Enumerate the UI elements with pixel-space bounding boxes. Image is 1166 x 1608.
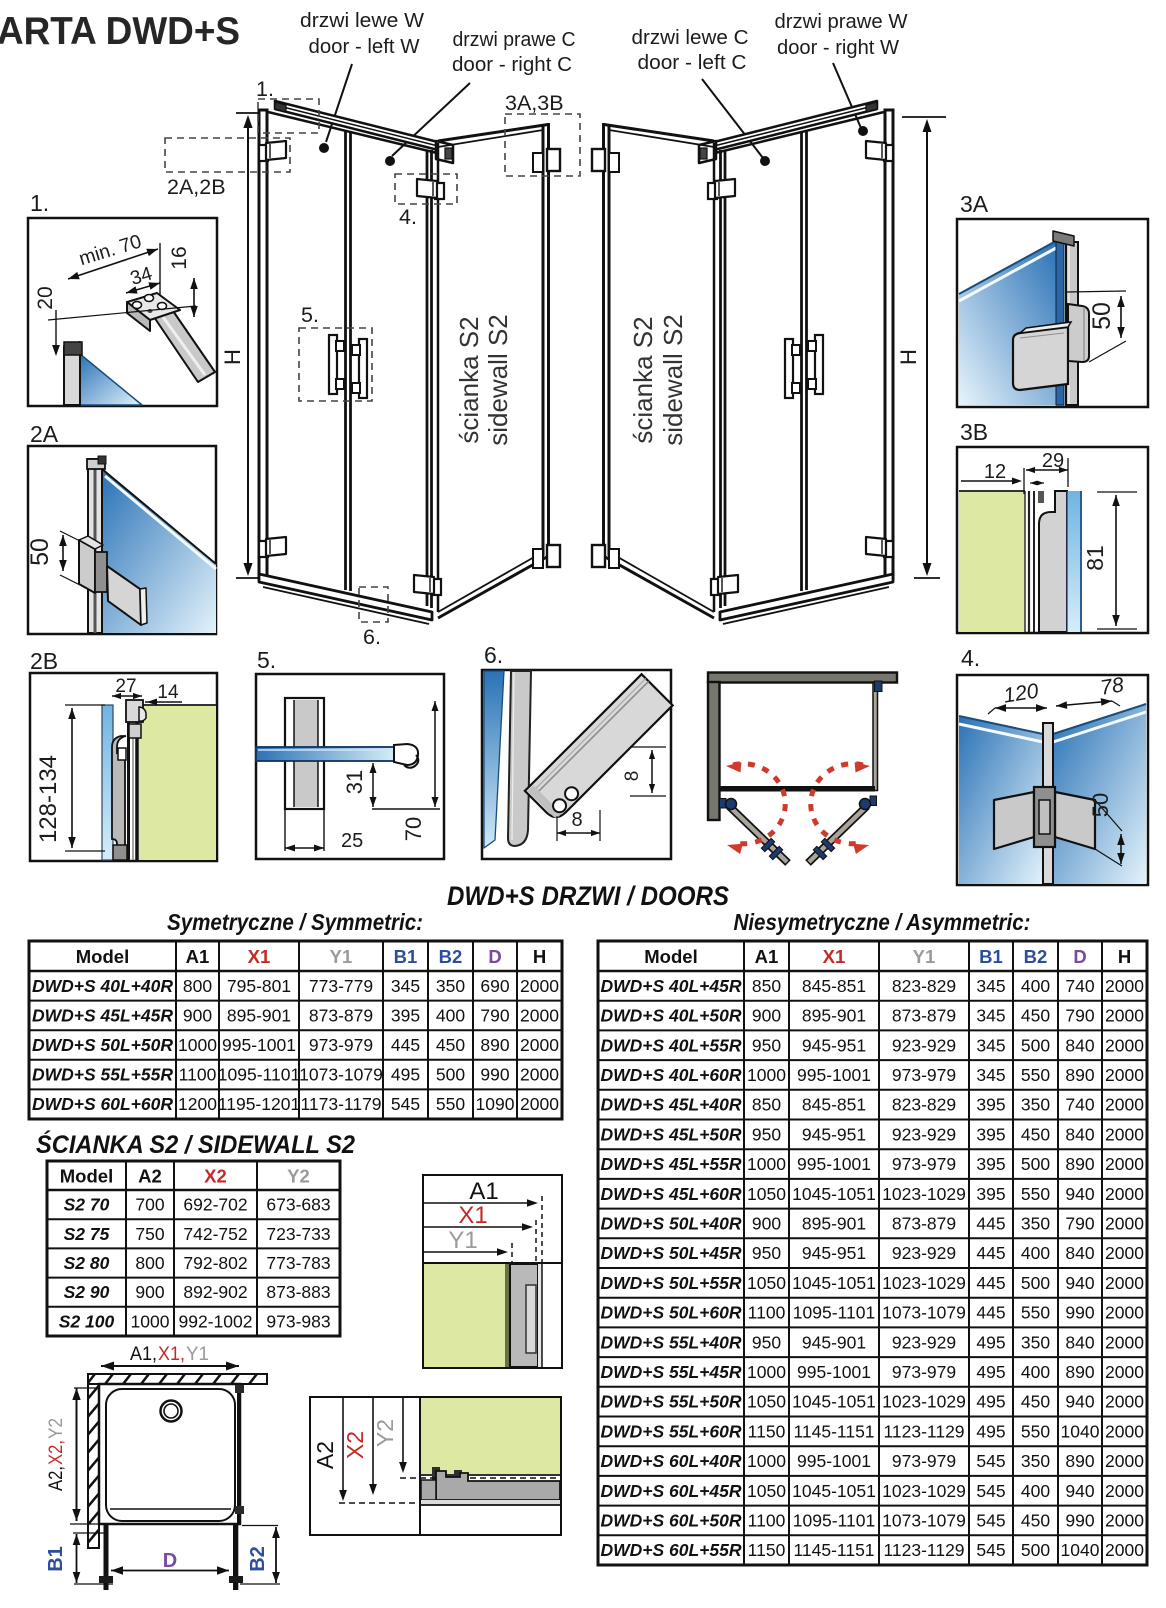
svg-text:S2 90: S2 90 [64, 1282, 110, 1302]
svg-text:X1: X1 [458, 1202, 487, 1229]
svg-text:550: 550 [1021, 1421, 1050, 1441]
svg-text:973-983: 973-983 [266, 1311, 330, 1331]
svg-text:500: 500 [1021, 1035, 1050, 1055]
svg-text:78: 78 [1099, 673, 1126, 699]
svg-text:X2: X2 [204, 1166, 227, 1187]
svg-text:S2 80: S2 80 [64, 1253, 110, 1273]
svg-text:1050: 1050 [747, 1273, 786, 1293]
svg-text:2A,2B: 2A,2B [167, 175, 226, 199]
svg-text:995-1001: 995-1001 [797, 1154, 871, 1174]
svg-text:1095-1101: 1095-1101 [218, 1065, 300, 1085]
svg-text:DWD+S 40L+60R: DWD+S 40L+60R [600, 1065, 741, 1085]
svg-text:840: 840 [1065, 1035, 1094, 1055]
svg-text:400: 400 [1021, 1243, 1050, 1263]
svg-text:Model: Model [76, 946, 129, 967]
svg-text:850: 850 [752, 976, 781, 996]
svg-text:345: 345 [391, 976, 420, 996]
svg-text:S2 70: S2 70 [64, 1195, 110, 1215]
svg-text:1000: 1000 [747, 1451, 786, 1471]
svg-text:790: 790 [480, 1005, 509, 1025]
svg-text:door - right C: door - right C [452, 54, 572, 76]
svg-text:1023-1029: 1023-1029 [882, 1273, 966, 1293]
svg-text:890: 890 [1065, 1154, 1094, 1174]
svg-text:545: 545 [976, 1451, 1005, 1471]
svg-text:2000: 2000 [1105, 1154, 1144, 1174]
svg-text:1023-1029: 1023-1029 [882, 1481, 966, 1501]
svg-text:1050: 1050 [747, 1184, 786, 1204]
svg-text:1045-1051: 1045-1051 [792, 1392, 876, 1412]
svg-text:1150: 1150 [748, 1540, 786, 1560]
svg-text:400: 400 [436, 1005, 465, 1025]
svg-text:773-783: 773-783 [266, 1253, 330, 1273]
svg-text:1045-1051: 1045-1051 [792, 1184, 876, 1204]
svg-text:sidewall S2: sidewall S2 [483, 314, 513, 446]
svg-text:940: 940 [1065, 1184, 1094, 1204]
svg-text:995-1001: 995-1001 [797, 1451, 871, 1471]
svg-text:25: 25 [341, 830, 363, 852]
svg-text:890: 890 [1065, 1451, 1094, 1471]
svg-text:2000: 2000 [520, 1005, 559, 1025]
svg-text:DWD+S 50L+45R: DWD+S 50L+45R [600, 1243, 741, 1263]
svg-text:2000: 2000 [1105, 1243, 1144, 1263]
svg-text:6.: 6. [484, 642, 503, 668]
svg-text:2000: 2000 [520, 976, 559, 996]
svg-text:445: 445 [976, 1303, 1005, 1323]
svg-text:500: 500 [1021, 1154, 1050, 1174]
svg-text:DWD+S 50L+55R: DWD+S 50L+55R [600, 1273, 741, 1293]
svg-text:8: 8 [571, 809, 582, 831]
svg-text:945-951: 945-951 [802, 1035, 866, 1055]
svg-text:DWD+S 50L+40R: DWD+S 50L+40R [600, 1213, 741, 1233]
svg-text:2000: 2000 [520, 1094, 559, 1114]
svg-text:2000: 2000 [1105, 1184, 1144, 1204]
svg-text:1173-1179: 1173-1179 [300, 1094, 381, 1114]
svg-text:ARTA DWD+S: ARTA DWD+S [0, 10, 240, 53]
svg-text:1000: 1000 [131, 1311, 170, 1331]
svg-text:950: 950 [752, 1124, 781, 1144]
svg-text:950: 950 [752, 1035, 781, 1055]
svg-text:Model: Model [644, 946, 697, 967]
svg-text:2000: 2000 [1105, 1421, 1144, 1441]
svg-text:550: 550 [1021, 1184, 1050, 1204]
svg-text:B1: B1 [394, 946, 418, 967]
svg-text:X1,: X1, [158, 1344, 185, 1365]
svg-text:A2: A2 [138, 1166, 162, 1187]
svg-text:Y2: Y2 [46, 1418, 67, 1439]
svg-text:1195-1201: 1195-1201 [218, 1094, 300, 1114]
svg-text:1100: 1100 [748, 1303, 786, 1323]
svg-text:1145-1151: 1145-1151 [793, 1421, 874, 1441]
svg-text:H: H [220, 349, 245, 365]
svg-text:Y2: Y2 [372, 1419, 398, 1447]
svg-text:1050: 1050 [747, 1481, 786, 1501]
svg-text:750: 750 [135, 1224, 164, 1244]
svg-text:DWD+S 45L+55R: DWD+S 45L+55R [600, 1154, 741, 1174]
svg-text:445: 445 [976, 1273, 1005, 1293]
svg-text:2000: 2000 [1105, 1006, 1144, 1026]
svg-text:345: 345 [976, 976, 1005, 996]
svg-text:923-929: 923-929 [892, 1035, 956, 1055]
svg-text:973-979: 973-979 [892, 1065, 956, 1085]
svg-text:X1: X1 [823, 946, 846, 967]
svg-text:31: 31 [342, 770, 367, 794]
svg-text:550: 550 [436, 1094, 465, 1114]
svg-text:395: 395 [976, 1184, 1005, 1204]
svg-text:940: 940 [1065, 1273, 1094, 1293]
svg-text:50: 50 [1088, 302, 1116, 330]
svg-text:992-1002: 992-1002 [179, 1311, 253, 1331]
svg-text:545: 545 [976, 1510, 1005, 1530]
svg-text:DWD+S 50L+50R: DWD+S 50L+50R [32, 1035, 173, 1055]
svg-text:ŚCIANKA S2 / SIDEWALL S2: ŚCIANKA S2 / SIDEWALL S2 [36, 1130, 355, 1159]
svg-text:890: 890 [480, 1035, 509, 1055]
svg-text:Symetryczne / Symmetric:: Symetryczne / Symmetric: [167, 909, 423, 935]
svg-text:545: 545 [976, 1481, 1005, 1501]
svg-text:973-979: 973-979 [892, 1451, 956, 1471]
svg-text:345: 345 [976, 1065, 1005, 1085]
svg-text:790: 790 [1065, 1006, 1094, 1026]
svg-text:673-683: 673-683 [266, 1195, 330, 1215]
svg-text:DWD+S 55L+50R: DWD+S 55L+50R [600, 1392, 741, 1412]
svg-text:DWD+S 40L+50R: DWD+S 40L+50R [600, 1006, 741, 1026]
svg-text:DWD+S 55L+55R: DWD+S 55L+55R [32, 1065, 173, 1085]
svg-text:1095-1101: 1095-1101 [793, 1510, 875, 1530]
svg-text:2000: 2000 [1105, 1213, 1144, 1233]
svg-text:742-752: 742-752 [183, 1224, 247, 1244]
svg-text:DWD+S DRZWI / DOORS: DWD+S DRZWI / DOORS [447, 881, 729, 911]
svg-text:H: H [533, 946, 546, 967]
svg-text:545: 545 [976, 1540, 1005, 1560]
svg-text:345: 345 [976, 1035, 1005, 1055]
svg-text:995-1001: 995-1001 [222, 1035, 296, 1055]
svg-text:1073-1079: 1073-1079 [882, 1303, 966, 1323]
svg-text:DWD+S 60L+50R: DWD+S 60L+50R [600, 1510, 741, 1530]
svg-text:Y1: Y1 [186, 1344, 209, 1365]
svg-text:950: 950 [752, 1332, 781, 1352]
svg-text:500: 500 [436, 1065, 465, 1085]
svg-text:H: H [1118, 946, 1131, 967]
svg-text:2000: 2000 [1105, 976, 1144, 996]
svg-text:1.: 1. [30, 190, 49, 216]
svg-text:895-901: 895-901 [227, 1005, 291, 1025]
svg-text:S2 75: S2 75 [64, 1224, 110, 1244]
svg-text:DWD+S 55L+40R: DWD+S 55L+40R [600, 1332, 741, 1352]
svg-text:2000: 2000 [1105, 1362, 1144, 1382]
svg-text:845-851: 845-851 [802, 1095, 866, 1115]
svg-text:door - right W: door - right W [777, 37, 899, 59]
svg-text:X2,: X2, [46, 1440, 67, 1465]
svg-text:A1: A1 [186, 946, 210, 967]
svg-text:773-779: 773-779 [309, 976, 373, 996]
svg-text:350: 350 [436, 976, 465, 996]
svg-text:DWD+S 50L+60R: DWD+S 50L+60R [600, 1303, 741, 1323]
svg-text:3B: 3B [960, 419, 988, 445]
svg-text:1000: 1000 [747, 1362, 786, 1382]
svg-text:1145-1151: 1145-1151 [793, 1540, 874, 1560]
svg-text:400: 400 [1021, 1362, 1050, 1382]
svg-text:500: 500 [1021, 1273, 1050, 1293]
svg-text:2000: 2000 [1105, 1451, 1144, 1471]
svg-text:700: 700 [135, 1195, 164, 1215]
svg-text:drzwi prawe W: drzwi prawe W [775, 11, 908, 33]
svg-text:50: 50 [1088, 793, 1113, 817]
svg-text:Niesymetryczne / Asymmetric:: Niesymetryczne / Asymmetric: [734, 909, 1031, 935]
svg-text:6.: 6. [363, 625, 381, 649]
svg-text:ścianka S2: ścianka S2 [628, 316, 658, 443]
svg-text:2000: 2000 [1105, 1035, 1144, 1055]
svg-text:DWD+S 60L+60R: DWD+S 60L+60R [32, 1094, 173, 1114]
svg-text:2B: 2B [30, 648, 58, 674]
svg-text:1040: 1040 [1061, 1421, 1100, 1441]
svg-text:DWD+S 55L+60R: DWD+S 55L+60R [600, 1421, 741, 1441]
svg-text:A2: A2 [312, 1441, 338, 1469]
svg-text:840: 840 [1065, 1243, 1094, 1263]
svg-text:845-851: 845-851 [802, 976, 866, 996]
svg-text:400: 400 [1021, 976, 1050, 996]
svg-text:DWD+S 45L+40R: DWD+S 45L+40R [600, 1095, 741, 1115]
svg-text:873-883: 873-883 [266, 1282, 330, 1302]
svg-text:850: 850 [752, 1095, 781, 1115]
svg-text:1123-1129: 1123-1129 [883, 1421, 964, 1441]
svg-text:900: 900 [752, 1006, 781, 1026]
svg-text:445: 445 [391, 1035, 420, 1055]
svg-text:395: 395 [976, 1154, 1005, 1174]
svg-text:DWD+S 40L+55R: DWD+S 40L+55R [600, 1035, 741, 1055]
svg-text:990: 990 [1065, 1303, 1094, 1323]
svg-text:1000: 1000 [747, 1065, 786, 1085]
svg-text:973-979: 973-979 [892, 1362, 956, 1382]
svg-text:20: 20 [34, 286, 57, 309]
svg-text:495: 495 [391, 1065, 420, 1085]
svg-text:A1: A1 [755, 946, 779, 967]
svg-text:792-802: 792-802 [183, 1253, 247, 1273]
svg-text:450: 450 [1021, 1124, 1050, 1144]
svg-text:350: 350 [1021, 1213, 1050, 1233]
svg-text:873-879: 873-879 [309, 1005, 373, 1025]
svg-text:723-733: 723-733 [266, 1224, 330, 1244]
svg-text:1.: 1. [256, 77, 274, 101]
svg-text:D: D [488, 946, 501, 967]
svg-text:945-951: 945-951 [802, 1243, 866, 1263]
svg-text:DWD+S 60L+40R: DWD+S 60L+40R [600, 1451, 741, 1471]
svg-text:2000: 2000 [1105, 1510, 1144, 1530]
svg-text:1123-1129: 1123-1129 [883, 1540, 964, 1560]
svg-text:495: 495 [976, 1362, 1005, 1382]
svg-text:945-901: 945-901 [802, 1332, 866, 1352]
svg-text:900: 900 [752, 1213, 781, 1233]
svg-text:990: 990 [1065, 1510, 1094, 1530]
svg-text:2000: 2000 [1105, 1124, 1144, 1144]
svg-text:973-979: 973-979 [892, 1154, 956, 1174]
svg-text:740: 740 [1065, 1095, 1094, 1115]
svg-text:500: 500 [1021, 1540, 1050, 1560]
svg-text:350: 350 [1021, 1095, 1050, 1115]
svg-text:450: 450 [1021, 1392, 1050, 1412]
svg-text:door - left W: door - left W [309, 36, 420, 58]
svg-text:D: D [1073, 946, 1086, 967]
svg-text:2000: 2000 [1105, 1095, 1144, 1115]
svg-text:800: 800 [183, 976, 212, 996]
svg-text:890: 890 [1065, 1362, 1094, 1382]
svg-text:70: 70 [401, 817, 426, 841]
svg-text:395: 395 [976, 1095, 1005, 1115]
svg-text:1050: 1050 [747, 1392, 786, 1412]
svg-text:395: 395 [391, 1005, 420, 1025]
svg-text:1100: 1100 [748, 1510, 786, 1530]
svg-text:drzwi lewe C: drzwi lewe C [632, 27, 749, 49]
svg-text:A1,: A1, [130, 1344, 157, 1365]
svg-text:DWD+S 60L+45R: DWD+S 60L+45R [600, 1481, 741, 1501]
svg-text:900: 900 [183, 1005, 212, 1025]
svg-text:Y1: Y1 [448, 1227, 477, 1254]
svg-text:B2: B2 [247, 1546, 269, 1572]
svg-text:B1: B1 [979, 946, 1003, 967]
svg-text:Y1: Y1 [330, 946, 353, 967]
svg-text:ścianka S2: ścianka S2 [454, 316, 484, 443]
svg-text:800: 800 [135, 1253, 164, 1273]
svg-text:X2: X2 [342, 1431, 368, 1459]
svg-text:Y1: Y1 [913, 946, 936, 967]
svg-text:1000: 1000 [178, 1035, 217, 1055]
svg-text:995-1001: 995-1001 [797, 1065, 871, 1085]
svg-text:1045-1051: 1045-1051 [792, 1481, 876, 1501]
svg-text:345: 345 [976, 1006, 1005, 1026]
svg-text:923-929: 923-929 [892, 1243, 956, 1263]
svg-text:X1: X1 [248, 946, 271, 967]
svg-text:8: 8 [622, 771, 643, 782]
svg-text:450: 450 [436, 1035, 465, 1055]
svg-text:81: 81 [1082, 545, 1108, 571]
svg-text:2000: 2000 [1105, 1303, 1144, 1323]
svg-text:545: 545 [391, 1094, 420, 1114]
svg-text:2A: 2A [30, 421, 59, 447]
svg-text:H: H [896, 349, 921, 365]
svg-text:1045-1051: 1045-1051 [792, 1273, 876, 1293]
svg-text:DWD+S 45L+60R: DWD+S 45L+60R [600, 1184, 741, 1204]
svg-text:2000: 2000 [1105, 1065, 1144, 1085]
svg-text:1073-1079: 1073-1079 [299, 1065, 383, 1085]
svg-text:395: 395 [976, 1124, 1005, 1144]
svg-text:873-879: 873-879 [892, 1213, 956, 1233]
svg-text:1090: 1090 [476, 1094, 515, 1114]
svg-text:940: 940 [1065, 1392, 1094, 1412]
svg-text:840: 840 [1065, 1332, 1094, 1352]
svg-text:900: 900 [135, 1282, 164, 1302]
svg-text:sidewall S2: sidewall S2 [658, 314, 688, 446]
svg-text:12: 12 [984, 461, 1006, 483]
svg-text:450: 450 [1021, 1510, 1050, 1530]
svg-text:550: 550 [1021, 1303, 1050, 1323]
svg-text:450: 450 [1021, 1006, 1050, 1026]
svg-text:990: 990 [480, 1065, 509, 1085]
svg-text:1150: 1150 [748, 1421, 786, 1441]
svg-text:1000: 1000 [747, 1154, 786, 1174]
svg-text:790: 790 [1065, 1213, 1094, 1233]
svg-text:16: 16 [168, 246, 191, 269]
svg-text:DWD+S 55L+45R: DWD+S 55L+45R [600, 1362, 741, 1382]
svg-text:495: 495 [976, 1392, 1005, 1412]
svg-text:895-901: 895-901 [802, 1006, 866, 1026]
svg-text:795-801: 795-801 [227, 976, 291, 996]
svg-text:Y2: Y2 [287, 1166, 310, 1187]
svg-text:550: 550 [1021, 1065, 1050, 1085]
svg-text:350: 350 [1021, 1451, 1050, 1471]
svg-text:DWD+S 45L+45R: DWD+S 45L+45R [32, 1005, 173, 1025]
svg-text:1040: 1040 [1061, 1540, 1100, 1560]
svg-text:DWD+S 40L+40R: DWD+S 40L+40R [32, 976, 173, 996]
svg-text:945-951: 945-951 [802, 1124, 866, 1144]
svg-text:2000: 2000 [1105, 1273, 1144, 1293]
svg-text:4.: 4. [399, 205, 417, 229]
svg-text:1023-1029: 1023-1029 [882, 1184, 966, 1204]
svg-text:50: 50 [26, 538, 54, 566]
svg-text:A1: A1 [469, 1178, 498, 1205]
svg-text:2000: 2000 [1105, 1332, 1144, 1352]
svg-text:3A,3B: 3A,3B [505, 91, 564, 115]
svg-text:823-829: 823-829 [892, 1095, 956, 1115]
svg-text:D: D [163, 1550, 177, 1572]
svg-text:692-702: 692-702 [183, 1195, 247, 1215]
svg-text:drzwi lewe W: drzwi lewe W [300, 10, 424, 32]
svg-text:823-829: 823-829 [892, 976, 956, 996]
svg-text:2000: 2000 [520, 1035, 559, 1055]
svg-text:2000: 2000 [520, 1065, 559, 1085]
svg-text:445: 445 [976, 1243, 1005, 1263]
svg-text:995-1001: 995-1001 [797, 1362, 871, 1382]
svg-text:A2,: A2, [46, 1466, 67, 1491]
svg-text:495: 495 [976, 1421, 1005, 1441]
svg-text:400: 400 [1021, 1481, 1050, 1501]
svg-text:Model: Model [60, 1166, 113, 1187]
svg-text:4.: 4. [961, 645, 980, 671]
svg-text:B2: B2 [1024, 946, 1048, 967]
svg-text:350: 350 [1021, 1332, 1050, 1352]
svg-text:923-929: 923-929 [892, 1124, 956, 1144]
svg-text:door - left C: door - left C [638, 52, 747, 74]
svg-text:2000: 2000 [1105, 1540, 1144, 1560]
svg-text:445: 445 [976, 1213, 1005, 1233]
svg-text:973-979: 973-979 [309, 1035, 373, 1055]
svg-text:690: 690 [480, 976, 509, 996]
svg-text:1095-1101: 1095-1101 [793, 1303, 875, 1323]
svg-text:873-879: 873-879 [892, 1006, 956, 1026]
svg-text:840: 840 [1065, 1124, 1094, 1144]
svg-text:B1: B1 [45, 1546, 67, 1572]
svg-text:DWD+S 40L+45R: DWD+S 40L+45R [600, 976, 741, 996]
svg-text:DWD+S 45L+50R: DWD+S 45L+50R [600, 1124, 741, 1144]
svg-text:5.: 5. [257, 647, 276, 673]
svg-text:drzwi prawe C: drzwi prawe C [453, 29, 576, 51]
svg-text:5.: 5. [301, 303, 319, 327]
svg-text:892-902: 892-902 [183, 1282, 247, 1302]
svg-text:890: 890 [1065, 1065, 1094, 1085]
svg-text:128-134: 128-134 [35, 755, 62, 843]
svg-text:S2 100: S2 100 [59, 1311, 115, 1331]
svg-text:3A: 3A [960, 191, 989, 217]
svg-text:14: 14 [157, 682, 179, 703]
svg-text:495: 495 [976, 1332, 1005, 1352]
svg-text:DWD+S 60L+55R: DWD+S 60L+55R [600, 1540, 741, 1560]
svg-text:1100: 1100 [179, 1065, 217, 1085]
svg-text:740: 740 [1065, 976, 1094, 996]
svg-text:1073-1079: 1073-1079 [882, 1510, 966, 1530]
svg-text:1023-1029: 1023-1029 [882, 1392, 966, 1412]
svg-text:895-901: 895-901 [802, 1213, 866, 1233]
svg-text:2000: 2000 [1105, 1392, 1144, 1412]
svg-text:B2: B2 [439, 946, 463, 967]
svg-text:923-929: 923-929 [892, 1332, 956, 1352]
svg-text:950: 950 [752, 1243, 781, 1263]
